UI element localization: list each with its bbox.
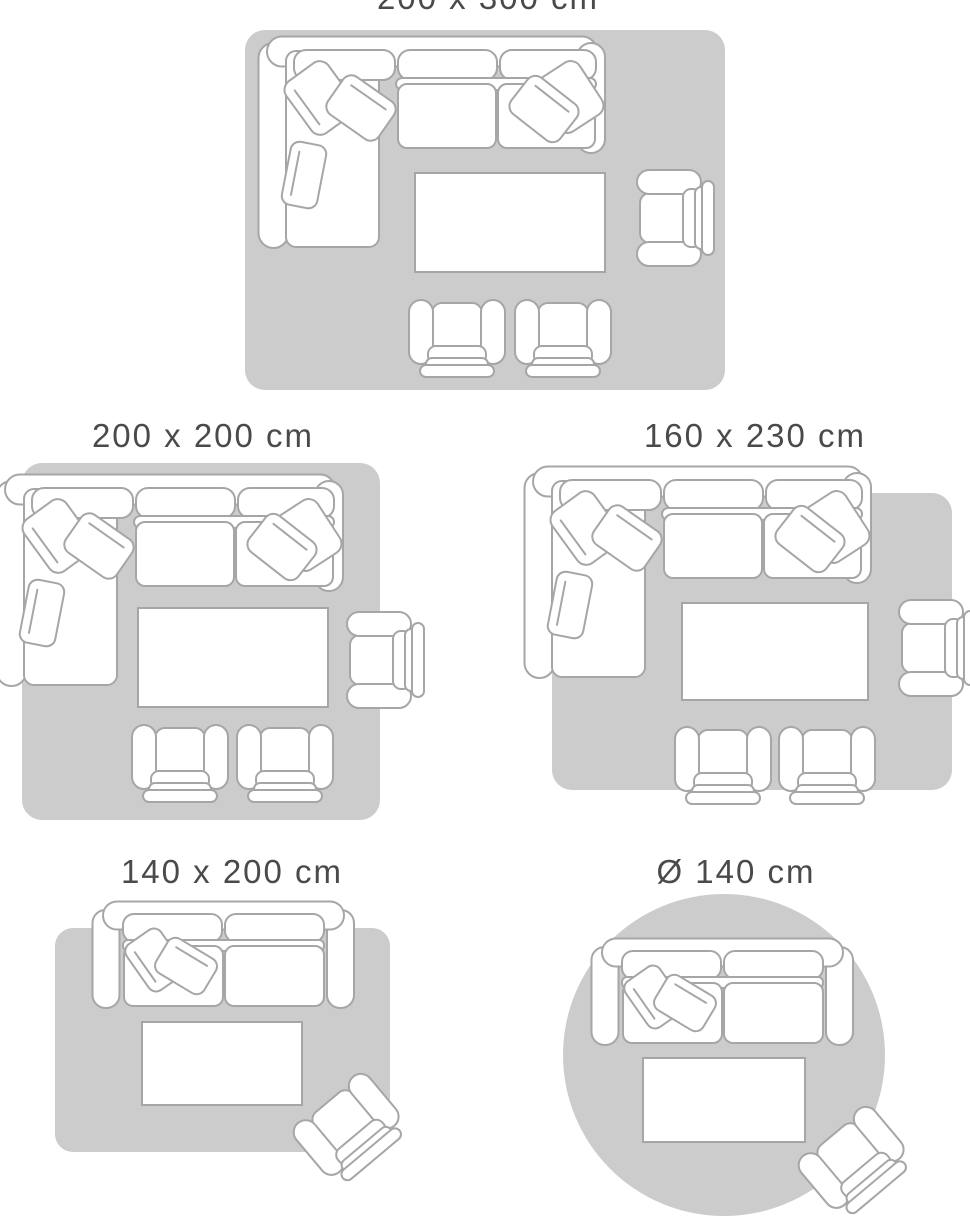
club-chair-left bbox=[409, 300, 505, 377]
club-chair-left bbox=[132, 725, 228, 802]
coffee-table bbox=[142, 1022, 302, 1105]
two-seater-sofa bbox=[592, 939, 854, 1046]
armchair bbox=[899, 600, 970, 696]
coffee-table bbox=[682, 603, 868, 700]
size-label-o140: Ø 140 cm bbox=[656, 853, 815, 891]
layout-200x200 bbox=[22, 463, 380, 820]
coffee-table bbox=[415, 173, 605, 272]
layout-200x300 bbox=[245, 30, 725, 390]
coffee-table bbox=[643, 1058, 805, 1142]
club-chair-right bbox=[779, 727, 875, 804]
rug-size-guide-page: { "page_title": "Rug size guide", "color… bbox=[0, 0, 970, 1213]
size-label-200x300: 200 x 300 cm bbox=[377, 0, 599, 17]
size-label-160x230: 160 x 230 cm bbox=[644, 417, 866, 455]
size-label-140x200: 140 x 200 cm bbox=[121, 853, 343, 891]
armchair bbox=[347, 612, 424, 708]
layout-o140 bbox=[563, 894, 885, 1216]
layout-140x200 bbox=[55, 928, 390, 1152]
armchair bbox=[637, 170, 714, 266]
layout-160x230 bbox=[552, 493, 952, 790]
club-chair-left bbox=[675, 727, 771, 804]
coffee-table bbox=[138, 608, 328, 707]
two-seater-sofa bbox=[93, 902, 355, 1009]
size-label-200x200: 200 x 200 cm bbox=[92, 417, 314, 455]
club-chair-right bbox=[515, 300, 611, 377]
club-chair-right bbox=[237, 725, 333, 802]
